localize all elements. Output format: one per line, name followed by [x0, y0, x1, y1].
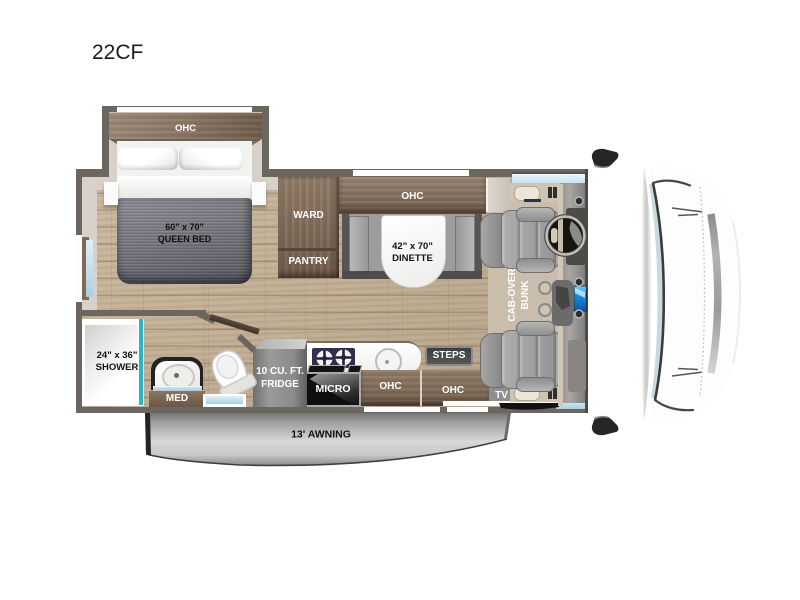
svg-text:13' AWNING: 13' AWNING	[291, 429, 351, 441]
